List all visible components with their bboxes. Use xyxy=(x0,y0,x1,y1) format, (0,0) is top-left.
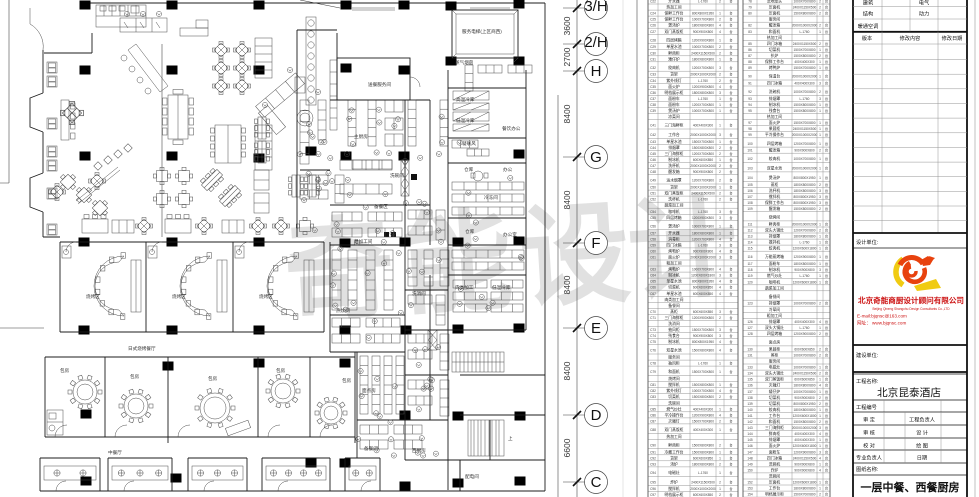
svg-text:修改内容: 修改内容 xyxy=(900,34,921,42)
svg-text:1500X700X800: 1500X700X800 xyxy=(692,328,714,332)
svg-text:2000X1000X2000: 2000X1000X2000 xyxy=(690,186,716,190)
svg-text:2: 2 xyxy=(819,354,821,358)
svg-text:台: 台 xyxy=(825,148,828,153)
svg-text:C90: C90 xyxy=(650,443,656,447)
svg-text:台: 台 xyxy=(729,84,732,89)
svg-text:C48: C48 xyxy=(650,170,656,174)
svg-text:四层烤箱: 四层烤箱 xyxy=(666,215,681,220)
svg-text:C32: C32 xyxy=(650,66,656,70)
svg-text:1: 1 xyxy=(819,462,821,466)
svg-text:C75: C75 xyxy=(650,340,656,344)
svg-text:C87: C87 xyxy=(650,419,656,423)
svg-text:台: 台 xyxy=(729,56,732,61)
svg-text:台: 台 xyxy=(729,65,732,70)
svg-text:台: 台 xyxy=(825,222,828,227)
svg-text:2: 2 xyxy=(819,207,821,211)
svg-text:1200X700X800: 1200X700X800 xyxy=(692,103,714,107)
svg-text:93: 93 xyxy=(748,97,752,101)
svg-text:1000X700X800: 1000X700X800 xyxy=(794,390,816,394)
svg-text:1: 1 xyxy=(719,370,721,374)
svg-text:双门蒸饭柜: 双门蒸饭柜 xyxy=(665,29,684,34)
svg-text:L-1760: L-1760 xyxy=(698,97,708,101)
svg-text:1000X700X800: 1000X700X800 xyxy=(692,109,714,113)
svg-text:98: 98 xyxy=(748,127,752,131)
svg-text:台: 台 xyxy=(729,406,732,411)
svg-text:C51: C51 xyxy=(650,192,656,196)
svg-text:C64: C64 xyxy=(650,274,656,278)
svg-text:C83: C83 xyxy=(650,395,656,399)
svg-text:一层中餐、西餐厨房: 一层中餐、西餐厨房 xyxy=(861,480,960,494)
svg-text:1: 1 xyxy=(719,224,721,228)
svg-text:900X900X800: 900X900X800 xyxy=(794,462,814,466)
svg-text:1: 1 xyxy=(719,103,721,107)
svg-text:C49: C49 xyxy=(650,179,656,183)
svg-text:1000X700X800: 1000X700X800 xyxy=(692,18,714,22)
svg-text:包房: 包房 xyxy=(60,367,70,374)
svg-text:台: 台 xyxy=(825,53,828,58)
svg-text:1: 1 xyxy=(719,38,721,42)
svg-text:3: 3 xyxy=(719,256,721,260)
svg-text:保鲜工作台: 保鲜工作台 xyxy=(765,200,784,205)
svg-text:2400X1150X500: 2400X1150X500 xyxy=(691,51,715,55)
svg-text:8400: 8400 xyxy=(562,361,572,380)
svg-text:2: 2 xyxy=(819,42,821,46)
svg-text:单星水池: 单星水池 xyxy=(666,44,681,49)
svg-text:C66: C66 xyxy=(650,286,656,290)
svg-text:138: 138 xyxy=(747,396,753,400)
svg-text:C35: C35 xyxy=(650,85,656,89)
svg-text:102: 102 xyxy=(747,157,753,161)
svg-text:2/H: 2/H xyxy=(584,34,607,51)
svg-text:台: 台 xyxy=(825,41,828,46)
svg-text:台: 台 xyxy=(729,72,732,77)
svg-text:台: 台 xyxy=(729,169,732,174)
svg-text:台: 台 xyxy=(729,361,732,366)
svg-text:C43: C43 xyxy=(650,140,656,144)
svg-text:2000X1000X2000: 2000X1000X2000 xyxy=(792,426,818,430)
svg-text:1800X800X800: 1800X800X800 xyxy=(692,57,714,61)
svg-text:2: 2 xyxy=(819,24,821,28)
svg-text:C93: C93 xyxy=(650,462,656,466)
svg-text:2000X1000X2000: 2000X1000X2000 xyxy=(690,487,716,491)
svg-text:4: 4 xyxy=(719,268,721,272)
svg-text:1: 1 xyxy=(819,127,821,131)
svg-text:明档展示柜: 明档展示柜 xyxy=(665,492,684,497)
svg-text:服务电梯(上区商西): 服务电梯(上区商西) xyxy=(462,28,502,35)
svg-text:台: 台 xyxy=(729,29,732,34)
svg-text:3: 3 xyxy=(819,450,821,454)
svg-text:2000X1000X2000: 2000X1000X2000 xyxy=(690,164,716,168)
svg-text:C24: C24 xyxy=(650,12,656,16)
svg-text:C31: C31 xyxy=(650,57,656,61)
svg-text:800X800X1950: 800X800X1950 xyxy=(794,195,816,199)
svg-text:台: 台 xyxy=(825,279,828,284)
svg-text:台: 台 xyxy=(729,327,732,332)
svg-text:台: 台 xyxy=(729,163,732,168)
svg-text:143: 143 xyxy=(747,426,753,430)
svg-text:1: 1 xyxy=(719,140,721,144)
svg-text:1: 1 xyxy=(719,57,721,61)
svg-text:双头大锅灶: 双头大锅灶 xyxy=(765,371,784,376)
svg-text:1: 1 xyxy=(719,428,721,432)
svg-text:127: 127 xyxy=(747,326,753,330)
svg-text:C92: C92 xyxy=(650,456,656,460)
svg-text:C70: C70 xyxy=(650,310,656,314)
svg-text:双头大锅灶: 双头大锅灶 xyxy=(765,325,784,330)
svg-text:4: 4 xyxy=(819,468,821,472)
svg-text:台: 台 xyxy=(729,123,732,128)
svg-text:鲜肉柜: 鲜肉柜 xyxy=(668,50,680,55)
svg-text:1: 1 xyxy=(819,157,821,161)
svg-text:600X600X850: 600X600X850 xyxy=(693,310,713,314)
svg-text:2: 2 xyxy=(819,302,821,306)
svg-text:89: 89 xyxy=(748,66,752,70)
svg-text:400X400X300: 400X400X300 xyxy=(794,432,814,436)
svg-text:煲汤炉: 煲汤炉 xyxy=(668,223,680,228)
svg-text:仓库: 仓库 xyxy=(464,166,474,173)
svg-text:矮仔炉: 矮仔炉 xyxy=(769,389,781,394)
svg-text:烧烤区: 烧烤区 xyxy=(86,293,100,300)
svg-text:C52: C52 xyxy=(650,198,656,202)
svg-text:400X400X300: 400X400X300 xyxy=(693,407,713,411)
svg-text:台: 台 xyxy=(825,331,828,336)
svg-text:搅拌机: 搅拌机 xyxy=(668,486,680,491)
svg-text:600X600X850: 600X600X850 xyxy=(693,286,713,290)
svg-text:2: 2 xyxy=(819,54,821,58)
svg-text:灭蝇灯: 灭蝇灯 xyxy=(769,383,781,388)
svg-text:四层烤箱: 四层烤箱 xyxy=(666,37,681,42)
svg-text:和面机: 和面机 xyxy=(668,369,680,374)
svg-text:台: 台 xyxy=(729,50,732,55)
svg-text:134: 134 xyxy=(747,372,753,376)
svg-text:C97: C97 xyxy=(650,493,656,497)
svg-text:台: 台 xyxy=(825,5,828,10)
svg-text:1000X700X800: 1000X700X800 xyxy=(794,302,816,306)
svg-text:搅拌机: 搅拌机 xyxy=(668,382,680,387)
svg-text:119: 119 xyxy=(747,274,752,278)
svg-text:台: 台 xyxy=(825,407,828,412)
svg-text:C47: C47 xyxy=(650,164,656,168)
svg-text:C59: C59 xyxy=(650,243,656,247)
svg-text:台: 台 xyxy=(825,401,828,406)
svg-text:6600: 6600 xyxy=(562,438,572,457)
svg-text:1500X700X800: 1500X700X800 xyxy=(794,66,816,70)
svg-text:400X400X300: 400X400X300 xyxy=(693,124,713,128)
svg-text:绞肉机: 绞肉机 xyxy=(769,407,781,412)
svg-text:3: 3 xyxy=(819,97,821,101)
svg-text:台: 台 xyxy=(729,255,732,260)
svg-text:126: 126 xyxy=(747,320,753,324)
svg-text:台: 台 xyxy=(729,492,732,497)
svg-text:1800X800X800: 1800X800X800 xyxy=(794,384,816,388)
svg-text:1000X700X800: 1000X700X800 xyxy=(692,268,714,272)
svg-text:面火炉: 面火炉 xyxy=(769,120,781,125)
svg-text:校 对: 校 对 xyxy=(863,442,875,450)
svg-text:蒸柜: 蒸柜 xyxy=(771,353,779,358)
svg-text:600X600X850: 600X600X850 xyxy=(693,292,713,296)
svg-text:400X400X300: 400X400X300 xyxy=(693,428,713,432)
svg-text:台: 台 xyxy=(825,108,828,113)
svg-text:台: 台 xyxy=(729,151,732,156)
svg-text:1200X700X800: 1200X700X800 xyxy=(692,66,714,70)
svg-text:4: 4 xyxy=(719,292,721,296)
svg-text:C44: C44 xyxy=(650,146,656,150)
svg-text:2000X1000X2000: 2000X1000X2000 xyxy=(792,75,818,79)
svg-text:2700: 2700 xyxy=(562,47,572,66)
svg-text:台: 台 xyxy=(825,126,828,131)
svg-text:1: 1 xyxy=(819,390,821,394)
svg-text:热加工间: 热加工间 xyxy=(767,35,782,40)
svg-text:蒸柜: 蒸柜 xyxy=(670,309,678,314)
svg-text:修改日期: 修改日期 xyxy=(942,34,963,42)
svg-text:2: 2 xyxy=(719,316,721,320)
svg-text:2: 2 xyxy=(819,0,821,4)
svg-text:台: 台 xyxy=(825,246,828,251)
svg-text:2: 2 xyxy=(719,0,721,4)
svg-text:L-1760: L-1760 xyxy=(800,241,810,245)
svg-text:配电间: 配电间 xyxy=(465,473,479,480)
svg-text:1: 1 xyxy=(819,408,821,412)
svg-text:91: 91 xyxy=(748,82,752,86)
svg-text:台: 台 xyxy=(825,182,828,187)
svg-text:2400X1150X500: 2400X1150X500 xyxy=(793,456,817,460)
svg-text:600X600X850: 600X600X850 xyxy=(693,493,713,497)
svg-text:四门冰箱: 四门冰箱 xyxy=(767,41,782,46)
svg-text:醒发箱: 醒发箱 xyxy=(769,206,781,211)
svg-text:台: 台 xyxy=(729,197,732,202)
svg-text:L-1760: L-1760 xyxy=(698,362,708,366)
svg-text:1: 1 xyxy=(819,176,821,180)
svg-text:台: 台 xyxy=(729,209,732,214)
svg-text:C26: C26 xyxy=(650,24,656,28)
svg-text:台: 台 xyxy=(825,228,828,233)
svg-text:L-1760: L-1760 xyxy=(698,243,708,247)
svg-text:面粉车: 面粉车 xyxy=(668,96,680,101)
svg-text:2: 2 xyxy=(719,179,721,183)
svg-text:冷冻间: 冷冻间 xyxy=(484,194,498,201)
svg-text:1: 1 xyxy=(819,366,821,370)
svg-text:抽风柜: 抽风柜 xyxy=(668,327,680,332)
svg-text:奇: 奇 xyxy=(281,206,398,335)
svg-text:烧烤区: 烧烤区 xyxy=(259,293,273,300)
svg-text:四层烤箱: 四层烤箱 xyxy=(767,141,782,146)
svg-text:搅拌机: 搅拌机 xyxy=(769,194,781,199)
svg-text:1: 1 xyxy=(719,362,721,366)
svg-text:台: 台 xyxy=(825,240,828,245)
svg-text:明档展示柜: 明档展示柜 xyxy=(665,90,684,95)
svg-text:台: 台 xyxy=(825,11,828,16)
svg-text:燃气炒灶: 燃气炒灶 xyxy=(767,273,782,278)
svg-text:1: 1 xyxy=(819,167,821,171)
svg-text:131: 131 xyxy=(747,354,753,358)
svg-text:台: 台 xyxy=(825,437,828,442)
svg-text:台: 台 xyxy=(825,89,828,94)
svg-text:C74: C74 xyxy=(650,334,656,338)
svg-text:2: 2 xyxy=(819,149,821,153)
svg-text:1800X800X800: 1800X800X800 xyxy=(692,462,714,466)
svg-text:工作台: 工作台 xyxy=(668,132,680,137)
svg-text:台: 台 xyxy=(729,486,732,491)
svg-text:台: 台 xyxy=(729,369,732,374)
svg-text:2: 2 xyxy=(719,493,721,497)
svg-text:台: 台 xyxy=(729,248,732,253)
svg-text:F: F xyxy=(591,235,600,252)
svg-text:台: 台 xyxy=(729,230,732,235)
svg-text:万能蒸烤箱: 万能蒸烤箱 xyxy=(765,254,784,259)
svg-text:800X800X1950: 800X800X1950 xyxy=(794,176,816,180)
svg-text:台: 台 xyxy=(729,412,732,417)
svg-text:搅拌机: 搅拌机 xyxy=(769,240,781,245)
svg-text:1000X700X800: 1000X700X800 xyxy=(692,45,714,49)
svg-text:排烟罩: 排烟罩 xyxy=(769,234,781,239)
svg-text:3: 3 xyxy=(719,133,721,137)
svg-text:107: 107 xyxy=(747,195,753,199)
svg-text:114: 114 xyxy=(747,241,752,245)
svg-text:热加工间: 热加工间 xyxy=(666,434,681,439)
svg-text:2: 2 xyxy=(719,480,721,484)
svg-text:1000X700X800: 1000X700X800 xyxy=(794,157,816,161)
svg-text:台: 台 xyxy=(729,185,732,190)
svg-text:1: 1 xyxy=(719,12,721,16)
svg-text:1: 1 xyxy=(719,471,721,475)
svg-text:4: 4 xyxy=(819,384,821,388)
svg-text:面点房: 面点房 xyxy=(769,340,781,345)
svg-text:1: 1 xyxy=(819,109,821,113)
svg-text:2000X1000X2000: 2000X1000X2000 xyxy=(690,73,716,77)
svg-text:139: 139 xyxy=(747,402,753,406)
svg-text:台: 台 xyxy=(729,157,732,162)
svg-text:C54: C54 xyxy=(650,210,656,214)
svg-text:设计单位:: 设计单位: xyxy=(856,238,878,246)
svg-text:抽风柜: 抽风柜 xyxy=(668,361,680,366)
svg-text:1500X800X800: 1500X800X800 xyxy=(794,207,816,211)
svg-text:800X800X1950: 800X800X1950 xyxy=(794,402,816,406)
svg-text:面粉车: 面粉车 xyxy=(668,102,680,107)
svg-text:台: 台 xyxy=(825,261,828,266)
svg-text:面粉车: 面粉车 xyxy=(769,449,781,454)
svg-text:C79: C79 xyxy=(650,370,656,374)
svg-text:123: 123 xyxy=(747,302,753,306)
svg-text:4: 4 xyxy=(719,24,721,28)
svg-text:1200X600X1800: 1200X600X1800 xyxy=(793,444,817,448)
svg-text:1: 1 xyxy=(819,121,821,125)
svg-text:1500X800X800: 1500X800X800 xyxy=(692,450,714,454)
svg-text:台: 台 xyxy=(825,96,828,101)
svg-text:80: 80 xyxy=(748,12,752,16)
svg-text:和面机: 和面机 xyxy=(769,29,781,34)
svg-text:制冰机: 制冰机 xyxy=(668,273,680,278)
svg-text:粗加工间: 粗加工间 xyxy=(354,238,373,245)
svg-text:洗消间: 洗消间 xyxy=(412,290,426,297)
svg-text:1800X800X800: 1800X800X800 xyxy=(794,235,816,239)
svg-text:1200X600X1800: 1200X600X1800 xyxy=(793,280,817,284)
svg-text:83: 83 xyxy=(748,30,752,34)
svg-text:1500X700X800: 1500X700X800 xyxy=(794,493,816,497)
svg-text:台: 台 xyxy=(825,188,828,193)
svg-text:低温冷库: 低温冷库 xyxy=(456,117,475,124)
svg-text:办公: 办公 xyxy=(503,166,513,173)
svg-text:1: 1 xyxy=(719,158,721,162)
svg-text:153: 153 xyxy=(747,487,753,491)
svg-text:暖通空调: 暖通空调 xyxy=(858,22,879,30)
svg-text:1500X800X800: 1500X800X800 xyxy=(692,349,714,353)
svg-text:绘 图: 绘 图 xyxy=(916,442,928,450)
svg-text:台: 台 xyxy=(825,29,828,34)
svg-text:2000X1000X2000: 2000X1000X2000 xyxy=(792,133,818,137)
svg-text:C58: C58 xyxy=(650,237,656,241)
svg-text:1200X900X800: 1200X900X800 xyxy=(692,38,714,42)
svg-text:台: 台 xyxy=(729,191,732,196)
svg-text:3: 3 xyxy=(719,334,721,338)
svg-text:2: 2 xyxy=(719,73,721,77)
svg-text:台: 台 xyxy=(729,382,732,387)
svg-text:1: 1 xyxy=(819,223,821,227)
svg-text:1000X700X800: 1000X700X800 xyxy=(794,354,816,358)
svg-text:1500X700X800: 1500X700X800 xyxy=(692,140,714,144)
svg-text:400X400X300: 400X400X300 xyxy=(794,82,814,86)
svg-text:1200X600X1800: 1200X600X1800 xyxy=(793,481,817,485)
svg-text:C29: C29 xyxy=(650,45,656,49)
svg-text:台: 台 xyxy=(729,139,732,144)
svg-text:台: 台 xyxy=(825,395,828,400)
svg-text:汤炉: 汤炉 xyxy=(670,461,678,466)
svg-text:1800X800X800: 1800X800X800 xyxy=(692,24,714,28)
svg-text:压面机: 压面机 xyxy=(769,11,781,16)
svg-text:1000X700X800: 1000X700X800 xyxy=(794,90,816,94)
svg-text:切菜机: 切菜机 xyxy=(769,401,781,406)
svg-text:凉菜间: 凉菜间 xyxy=(668,114,680,119)
svg-text:1: 1 xyxy=(819,103,821,107)
svg-text:C22: C22 xyxy=(650,0,656,4)
svg-text:平冷操作台: 平冷操作台 xyxy=(665,412,684,417)
svg-text:1200X900X800: 1200X900X800 xyxy=(692,413,714,417)
svg-text:1500X800X800: 1500X800X800 xyxy=(692,443,714,447)
svg-text:C94: C94 xyxy=(650,471,656,475)
svg-text:1: 1 xyxy=(819,280,821,284)
svg-text:动力: 动力 xyxy=(919,10,929,18)
svg-text:78: 78 xyxy=(748,0,752,4)
svg-text:台: 台 xyxy=(825,377,828,382)
svg-text:台: 台 xyxy=(825,0,828,4)
svg-text:3: 3 xyxy=(819,201,821,205)
svg-text:制冰机: 制冰机 xyxy=(769,267,781,272)
svg-text:台: 台 xyxy=(729,0,732,4)
svg-text:2: 2 xyxy=(819,12,821,16)
svg-text:4: 4 xyxy=(719,249,721,253)
svg-text:1500X800X800: 1500X800X800 xyxy=(692,395,714,399)
svg-text:C88: C88 xyxy=(650,428,656,432)
svg-text:L-1760: L-1760 xyxy=(800,326,810,330)
svg-text:双门蒸饭柜: 双门蒸饭柜 xyxy=(665,427,684,432)
svg-text:3: 3 xyxy=(819,195,821,199)
svg-text:北京奇能商厨设计顾问有限公司: 北京奇能商厨设计顾问有限公司 xyxy=(858,296,964,305)
svg-text:99: 99 xyxy=(748,133,752,137)
svg-text:600X600X850: 600X600X850 xyxy=(794,347,814,351)
svg-text:粗加工间: 粗加工间 xyxy=(767,313,782,318)
svg-text:C27: C27 xyxy=(650,30,656,34)
svg-text:3: 3 xyxy=(819,426,821,430)
svg-text:900X900X800: 900X900X800 xyxy=(794,149,814,153)
svg-text:台: 台 xyxy=(729,215,732,220)
svg-text:L-1760: L-1760 xyxy=(800,274,810,278)
svg-text:主厨房: 主厨房 xyxy=(354,133,368,140)
svg-text:2: 2 xyxy=(819,493,821,497)
svg-text:3: 3 xyxy=(719,216,721,220)
svg-text:4: 4 xyxy=(819,456,821,460)
svg-text:审 核: 审 核 xyxy=(863,429,875,437)
svg-text:1: 1 xyxy=(719,124,721,128)
svg-text:明档展示柜: 明档展示柜 xyxy=(765,492,784,497)
